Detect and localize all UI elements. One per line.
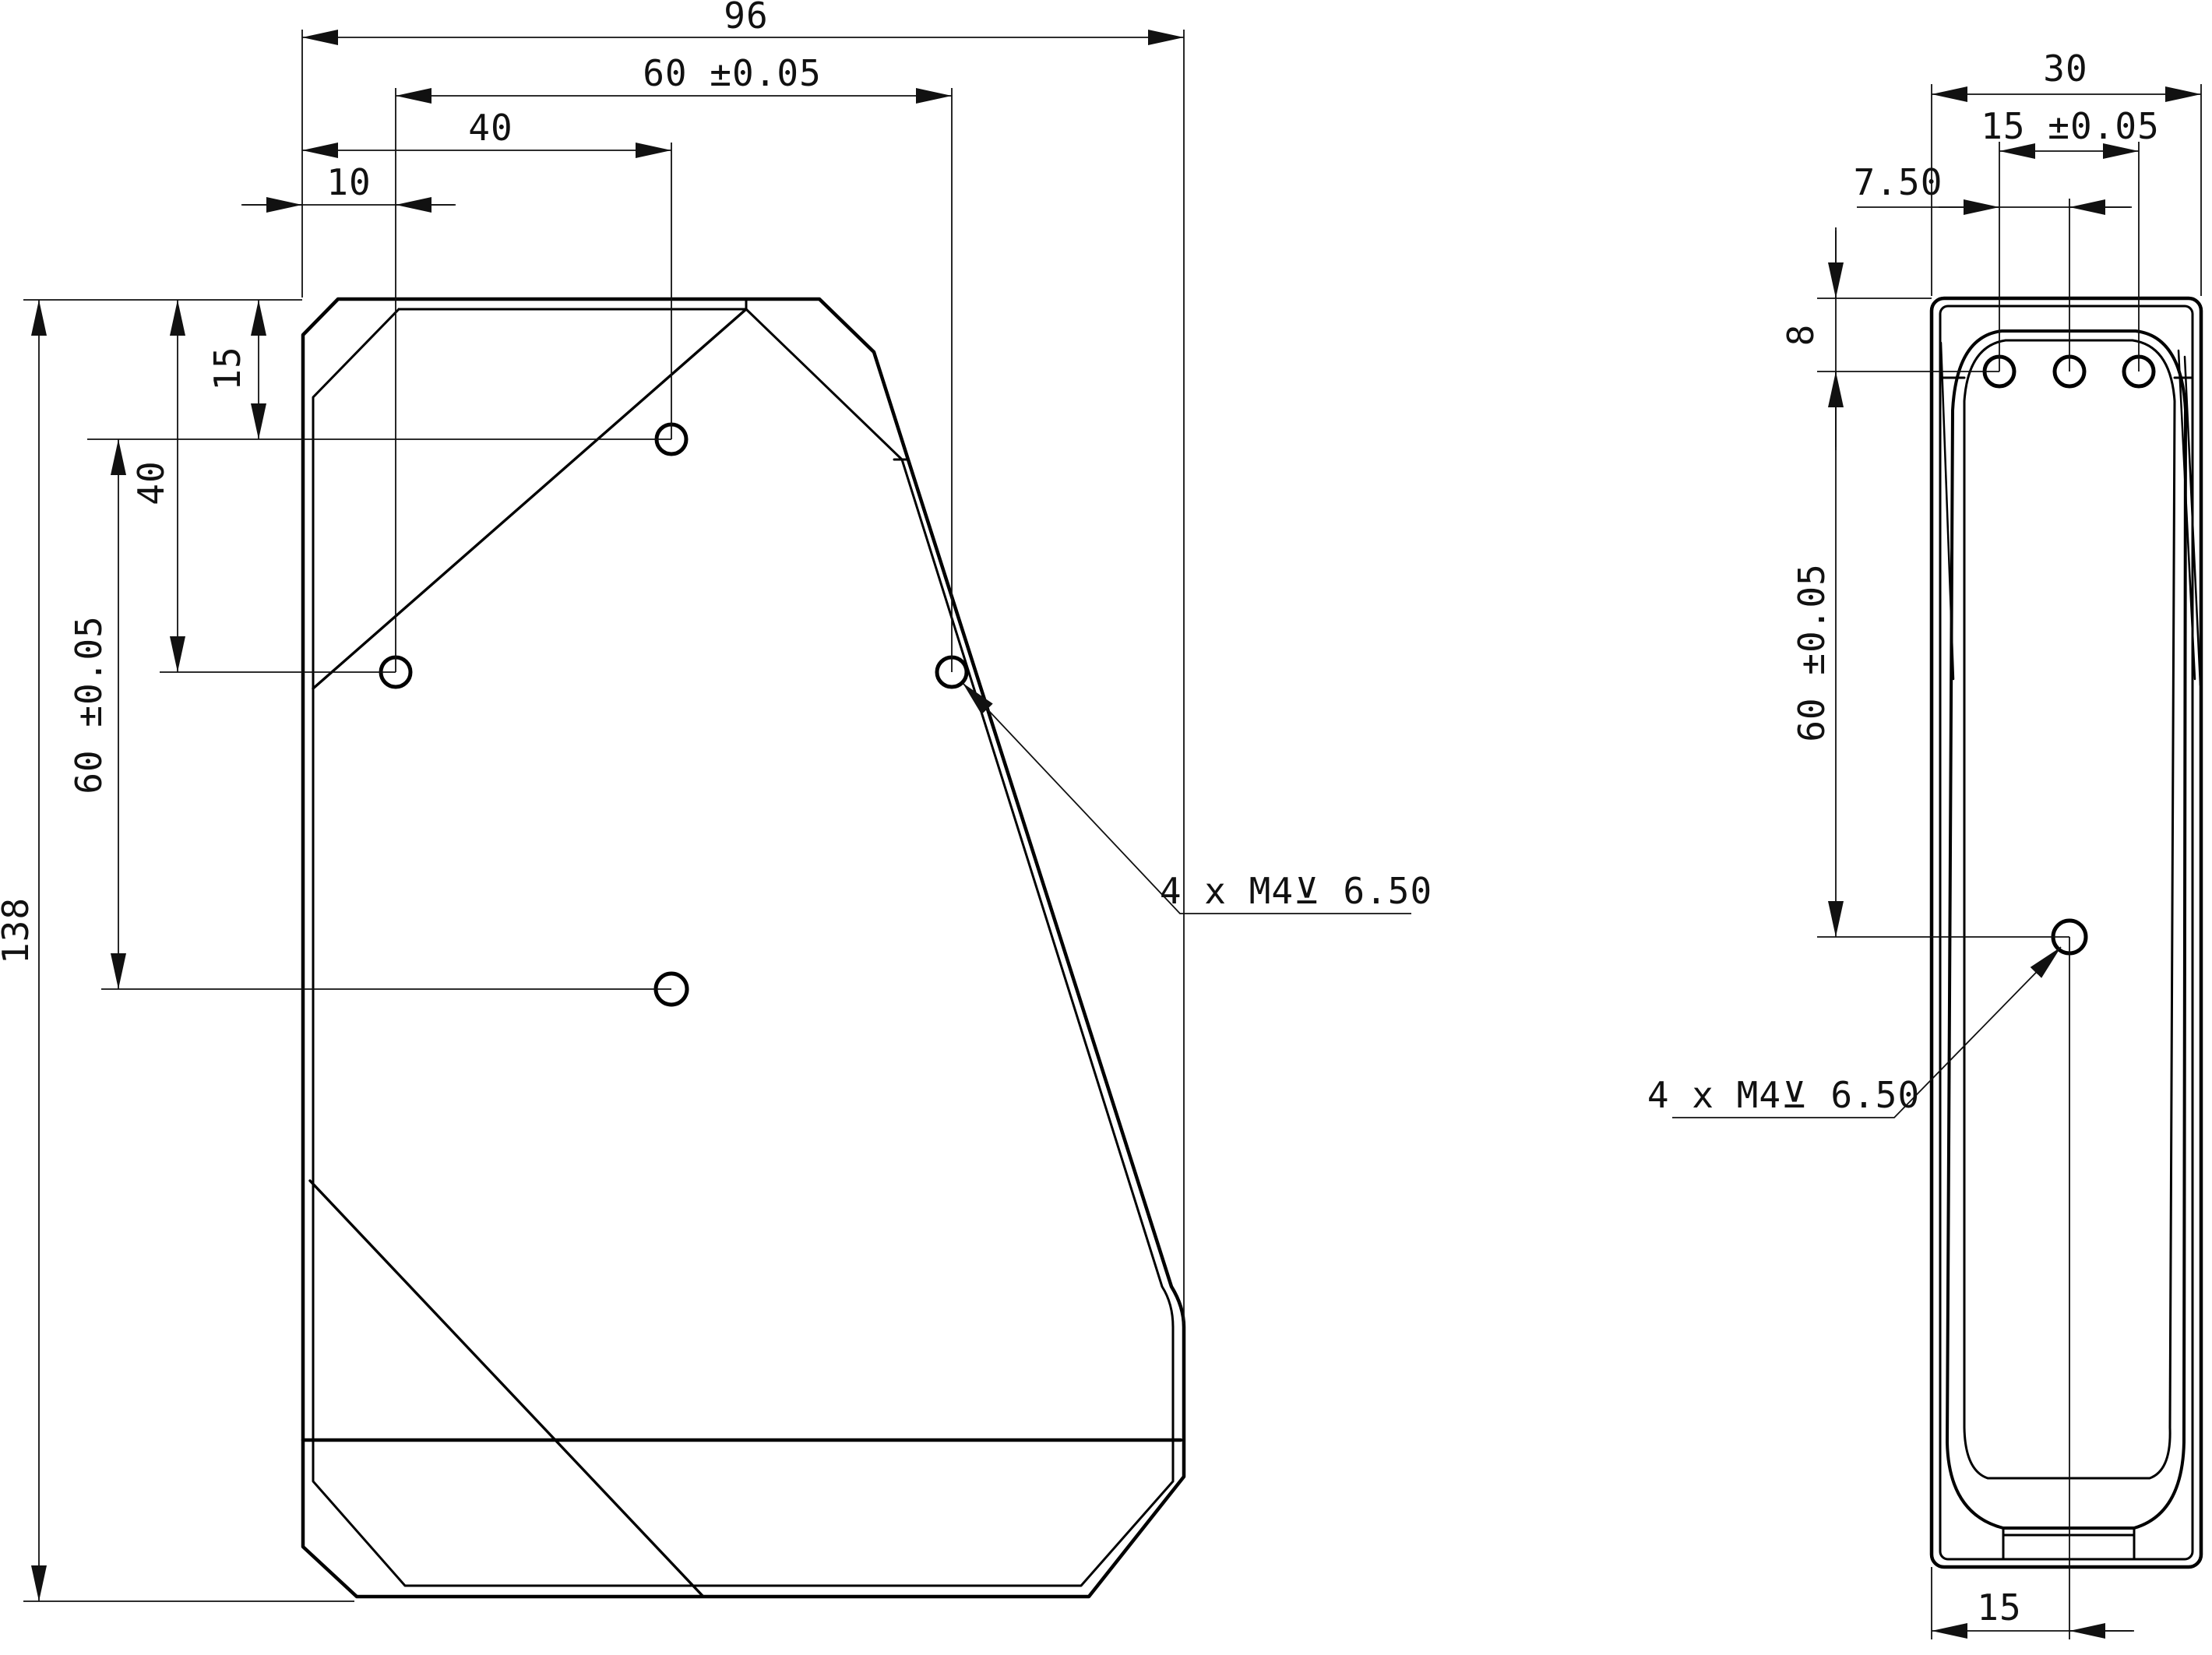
front-dim-138: 138 — [0, 897, 37, 964]
side-view: 30 15 ±0.05 7.50 8 60 ±0.05 4 x M4⊻ 6.50… — [1647, 48, 2201, 1639]
technical-drawing: 96 60 ±0.05 40 10 138 60 ±0.05 40 15 4 x… — [0, 0, 2212, 1655]
front-dim-60w: 60 ±0.05 — [643, 52, 822, 94]
drawing-canvas: 96 60 ±0.05 40 10 138 60 ±0.05 40 15 4 x… — [0, 0, 2212, 1655]
side-dim-60: 60 ±0.05 — [1791, 563, 1833, 742]
side-dim-15bot: 15 — [1977, 1586, 2021, 1629]
front-diagonal-upper — [313, 309, 746, 688]
front-inner-slant — [746, 309, 1173, 1327]
side-extension-lines — [1817, 84, 2201, 1639]
front-dim-60h: 60 ±0.05 — [68, 615, 110, 794]
side-pocket-outer — [1947, 331, 2186, 1528]
front-view: 96 60 ±0.05 40 10 138 60 ±0.05 40 15 4 x… — [0, 0, 1432, 1601]
front-dim-40w: 40 — [468, 107, 512, 149]
side-dim-15top: 15 ±0.05 — [1981, 105, 2160, 147]
side-thread-note: 4 x M4⊻ 6.50 — [1647, 1074, 1920, 1116]
front-dim-96: 96 — [724, 0, 768, 37]
side-dim-750: 7.50 — [1854, 161, 1943, 203]
front-dim-10: 10 — [326, 161, 371, 203]
side-outer-contour — [1932, 298, 2201, 1567]
side-dim-30: 30 — [2043, 48, 2087, 90]
side-draft-lines — [1941, 343, 2200, 685]
front-dim-15h: 15 — [206, 346, 248, 390]
front-inner-left — [313, 309, 1173, 1586]
front-outer-contour — [303, 299, 1184, 1597]
front-thread-note: 4 x M4⊻ 6.50 — [1160, 870, 1432, 912]
side-inner-contour — [1940, 306, 2193, 1559]
side-bottom-boss — [2003, 1528, 2134, 1559]
side-dim-8: 8 — [1780, 324, 1822, 347]
front-dim-40h: 40 — [130, 460, 172, 505]
front-diagonal-lower — [310, 1181, 703, 1597]
front-extension-lines — [23, 30, 1184, 1601]
